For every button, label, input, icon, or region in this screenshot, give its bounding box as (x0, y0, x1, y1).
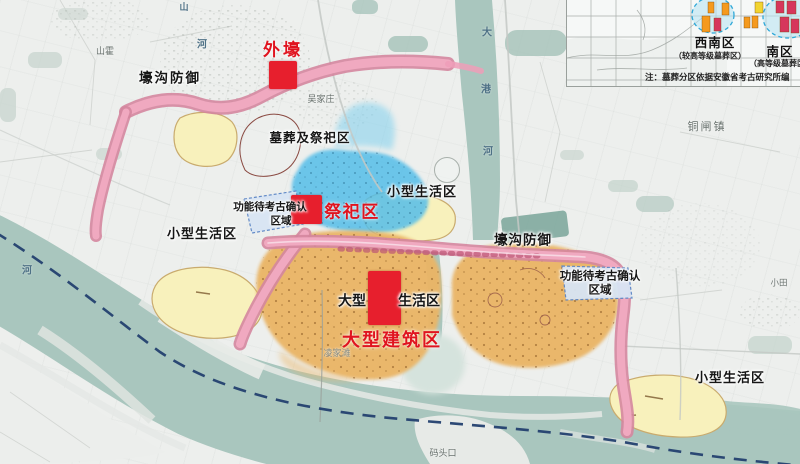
label-pending-right-line2: 区域 (589, 285, 612, 298)
inset-note: 注：墓葬分区依据安徽省考古研究所编 (645, 71, 790, 83)
inset-south-zone-sub: （高等级墓葬区） (749, 58, 800, 69)
label-small-living-top: 小型生活区 (387, 185, 457, 199)
label-small-living-right: 小型生活区 (695, 371, 765, 385)
pond-outline (435, 158, 460, 183)
marker-outer-moat (269, 61, 297, 89)
label-large-building-zone: 大型建筑区 (342, 331, 442, 351)
label-lingjiatan: 凌家滩 (323, 349, 350, 359)
label-dagang-char-1: 大 (482, 28, 492, 39)
label-burial-sacrificial-zone: 墓葬及祭祀区 (269, 132, 350, 146)
inset-grave-bar (791, 19, 799, 33)
label-tongzha-town: 铜闸镇 (688, 121, 727, 133)
inset-grave-bar (744, 17, 750, 28)
inset-grave-bar (776, 1, 784, 13)
label-large-living-prefix: 大型 (338, 293, 366, 308)
label-moat-defense-left: 壕沟防御 (139, 72, 201, 87)
label-river-char-he: 河 (197, 40, 207, 51)
dagang-river (455, 0, 500, 240)
inset-grave-bar (752, 16, 758, 28)
label-large-living-suffix: 生活区 (398, 293, 440, 308)
label-moat-defense-right: 壕沟防御 (494, 234, 552, 249)
label-xiaotian-village: 小田 (770, 278, 787, 287)
label-dagang-char-2: 港 (481, 85, 491, 96)
inset-grave-bar (702, 16, 710, 32)
label-small-living-left: 小型生活区 (167, 227, 237, 241)
label-river-char-shan: 山 (179, 3, 188, 13)
label-dagang-char-3: 河 (483, 147, 493, 158)
label-river-char-he-left: 河 (22, 266, 32, 277)
inset-grave-bar (708, 2, 714, 13)
inset-grave-bar (722, 3, 729, 15)
inset-grave-bar (780, 17, 789, 32)
label-pending-left-line2: 区域 (271, 216, 292, 228)
label-sacrificial-zone: 祭祀区 (324, 204, 380, 223)
inset-grave-bar (714, 18, 721, 31)
inset-grave-bar (787, 1, 796, 14)
inset-southwest-zone-label: 西南区 (695, 37, 736, 51)
label-pending-right-line1: 功能待考古确认 (560, 271, 641, 284)
inset-burial-zones-map: 西南区 （较高等级墓葬区） 南区 （高等级墓葬区） 注：墓葬分区依据安徽省考古研… (566, 0, 800, 87)
label-shanhuo-village: 山霍 (96, 47, 114, 57)
label-wujiazhuang-village: 吴家庄 (307, 95, 334, 105)
label-pending-left-line1: 功能待考古确认 (233, 202, 307, 214)
inset-grave-bar (755, 2, 763, 13)
label-outer-moat: 外壕 (263, 42, 303, 61)
site-zoning-map: 外壕 祭祀区 大型建筑区 壕沟防御 壕沟防御 墓葬及祭祀区 小型生活区 小型生活… (0, 0, 800, 464)
inset-southwest-zone-sub: （较高等级墓葬区） (674, 53, 746, 62)
marker-large-building (368, 271, 401, 325)
label-matoukou: 码头口 (429, 449, 456, 459)
